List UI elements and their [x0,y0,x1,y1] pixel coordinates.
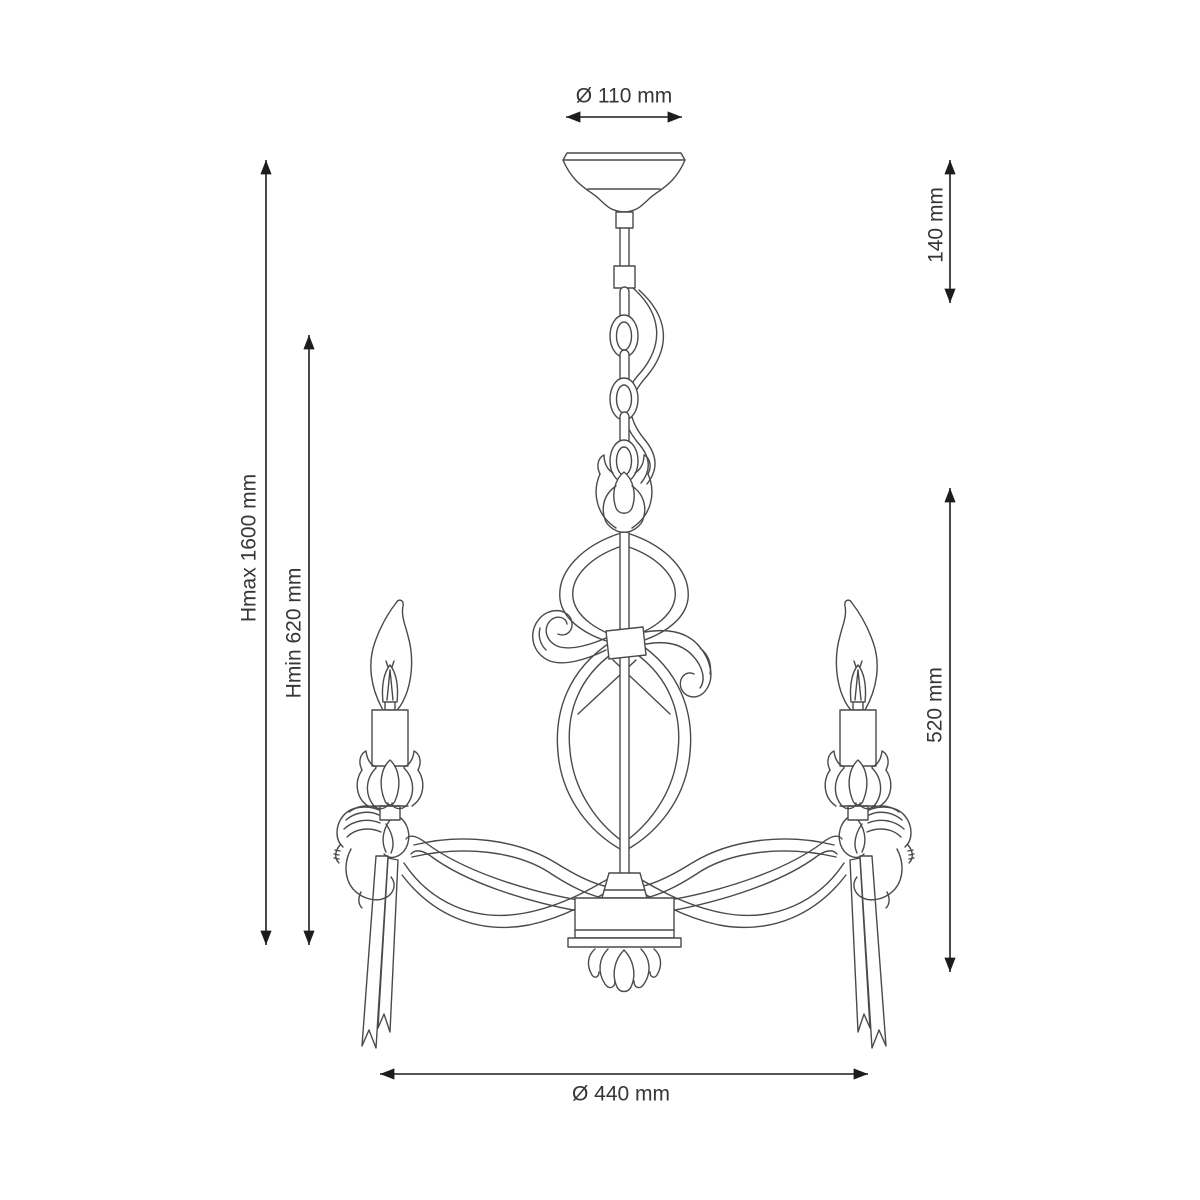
chandelier-line-art [0,0,1200,1200]
bottom-finial [588,949,660,992]
fixture-diameter-label: Ø 440 mm [572,1084,670,1105]
left-arm-unit [334,600,620,1048]
dimension-drawing-canvas: Ø 110 mm 140 mm Hmax 1600 mm Hmin 620 mm… [0,0,1200,1200]
ceiling-canopy [563,153,685,288]
suspension-chain [610,287,663,484]
central-rod [606,533,646,873]
canopy-diameter-label: Ø 110 mm [576,86,672,107]
central-hub [568,873,681,947]
height-max-label: Hmax 1600 mm [239,474,260,622]
right-arm-unit [628,600,914,1048]
height-min-label: Hmin 620 mm [284,568,305,699]
fixture-height-label: 520 mm [925,667,946,743]
canopy-drop-label: 140 mm [926,187,947,263]
